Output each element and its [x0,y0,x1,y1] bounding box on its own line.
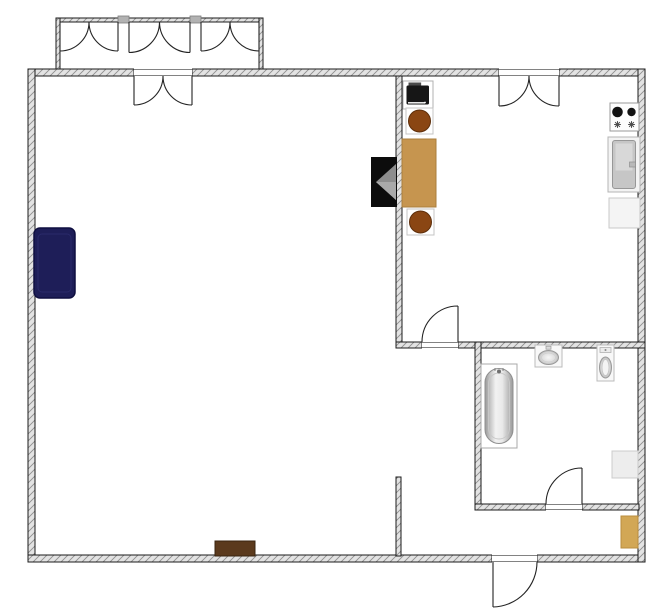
bathroom-sink[interactable] [535,345,562,367]
bay-right-wall [259,18,263,69]
top-mid-wall [192,69,499,76]
bottom-left-wall [28,555,492,562]
bathroom-bottom-left-wall [475,504,546,510]
bathroom-left-wall [475,342,481,510]
kitchen-appliance[interactable] [403,81,433,109]
top-left-wall [28,69,134,76]
bathroom-bottom-right-wall [582,504,639,510]
toilet[interactable] [597,345,614,381]
bay-mullion-1 [118,16,129,23]
sofa[interactable] [34,228,75,298]
stool-2[interactable] [407,209,434,235]
bathroom-cabinet[interactable] [612,451,638,478]
kitchen-bottom-left-wall [396,342,422,348]
bay-top-wall [56,18,263,22]
kitchen-separator-wall [396,76,402,342]
cooktop[interactable] [610,103,639,131]
hall-stub-wall [396,477,401,556]
hall-cabinet[interactable] [621,516,638,548]
stool-1[interactable] [406,108,433,134]
bay-mullion-2 [190,16,201,23]
kitchen-sink[interactable] [608,137,640,192]
floorplan-drawing [0,0,658,611]
top-right-wall [559,69,645,76]
left-wall [28,69,35,562]
kitchen-cabinet[interactable] [609,198,640,228]
floorplan-canvas [0,0,658,611]
bottom-right-wall [537,555,645,562]
bathtub[interactable] [481,364,517,448]
bay-left-wall [56,18,60,69]
sideboard[interactable] [215,541,255,556]
tv[interactable] [371,157,397,207]
dining-table[interactable] [402,139,436,207]
